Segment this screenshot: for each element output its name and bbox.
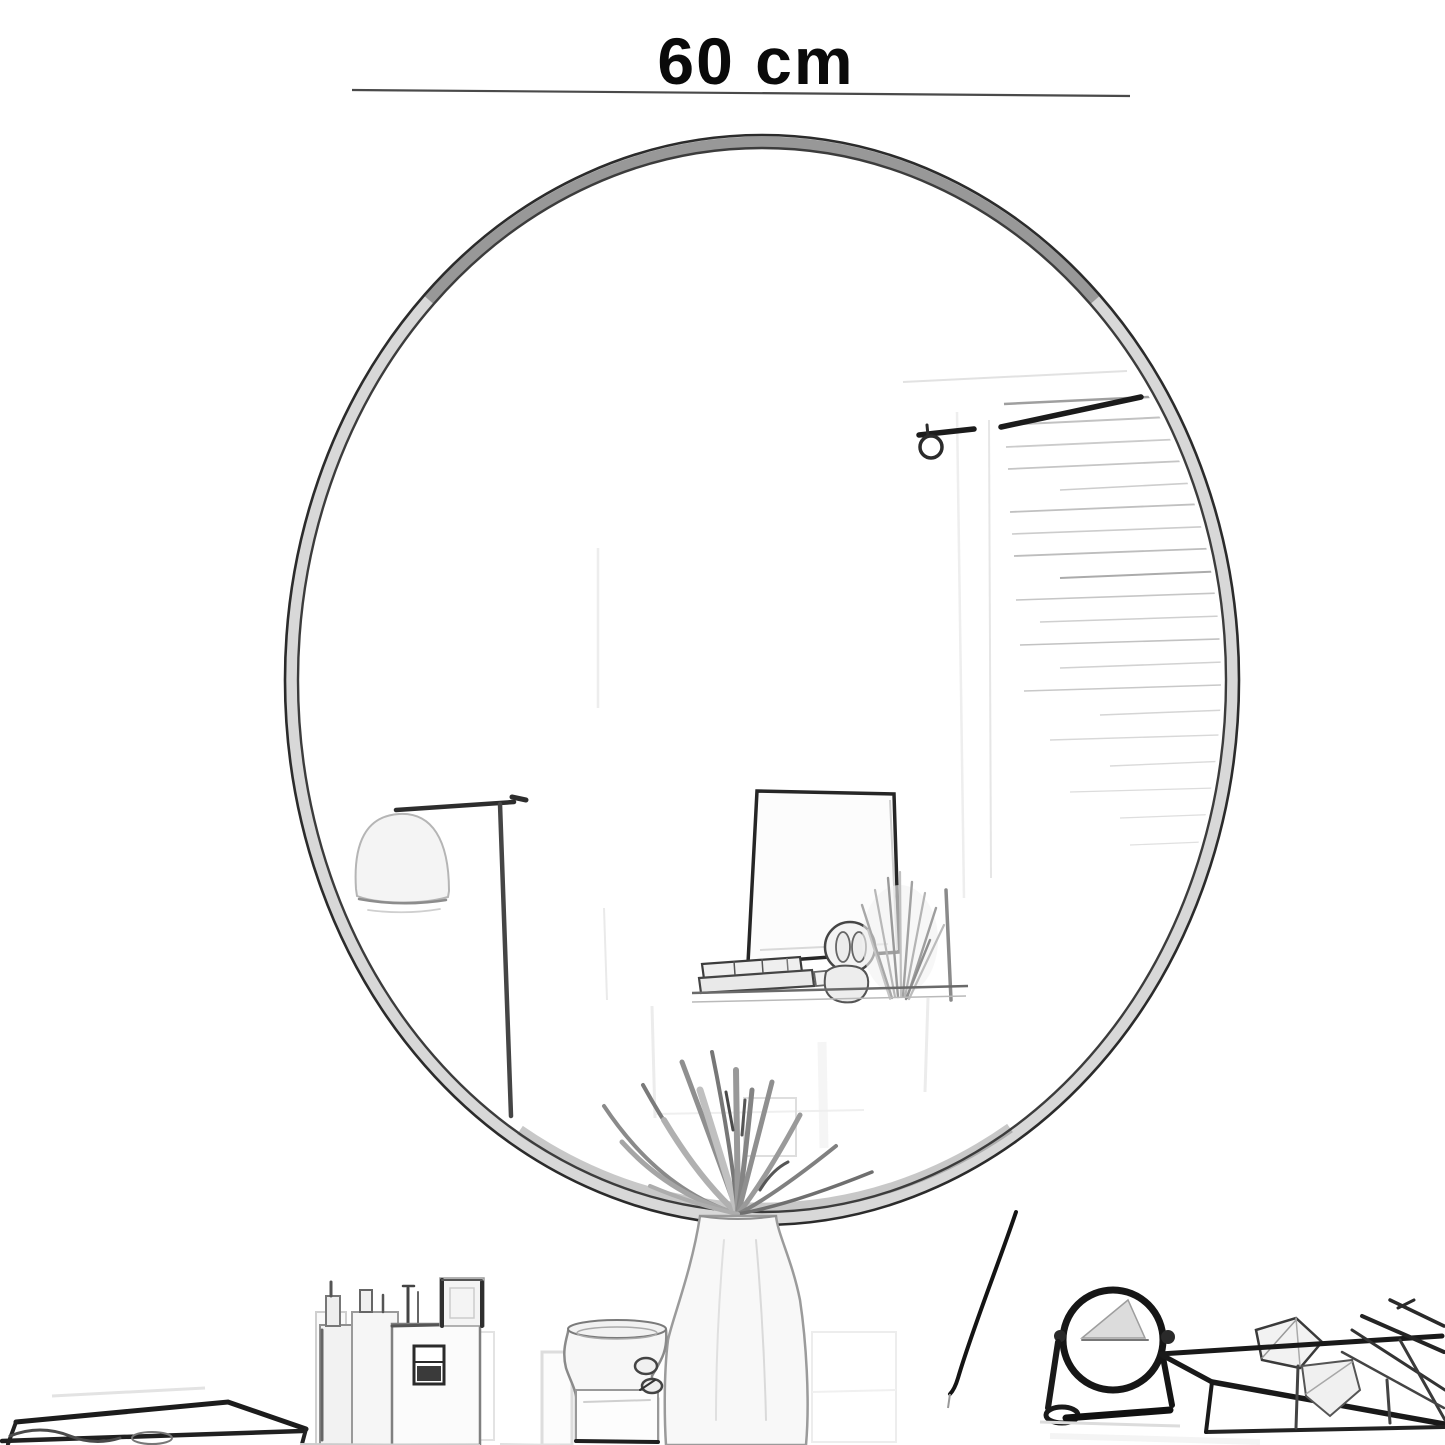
lamp-arm xyxy=(396,802,514,810)
table-mirror-base xyxy=(1066,1410,1170,1418)
rod-hook-ring xyxy=(920,436,942,458)
books-reflection xyxy=(699,957,838,993)
wall-corner-reflection xyxy=(598,548,607,1000)
storage-box xyxy=(2,1402,306,1444)
makeup-brushes xyxy=(1342,1300,1445,1420)
incense-stick xyxy=(948,1212,1016,1408)
dimension-label: 60 cm xyxy=(657,24,854,98)
perfume-bottle xyxy=(440,1278,484,1326)
faint-background-box xyxy=(812,1332,896,1442)
perfume-bottles xyxy=(316,1278,494,1445)
vanity-tray xyxy=(1160,1300,1445,1432)
table-mirror-leg xyxy=(1048,1342,1058,1408)
product-sketch-canvas: 60 cm xyxy=(0,0,1445,1445)
mirror-frame-inner-edge xyxy=(298,148,1226,1212)
product-sketch-page: 60 cm xyxy=(0,0,1445,1445)
jar-label xyxy=(576,1390,658,1442)
mirror-frame-bottom-shade xyxy=(520,1128,1010,1208)
wall-mirror-sketch xyxy=(285,135,1239,1225)
plant-vase xyxy=(665,1216,808,1445)
curtain-rod-reflection xyxy=(919,397,1141,458)
cosmetic-jar xyxy=(542,1320,666,1445)
dried-grass-reflection xyxy=(862,872,951,1000)
table-mirror xyxy=(1046,1290,1175,1423)
window-blinds-reflection xyxy=(903,371,1252,898)
lamp-pole xyxy=(500,804,511,1116)
perfume-bottle xyxy=(320,1325,354,1445)
dimension-annotation: 60 cm xyxy=(352,24,1130,98)
lamp-shade xyxy=(356,814,449,903)
table-mirror-reflection xyxy=(1082,1300,1145,1338)
